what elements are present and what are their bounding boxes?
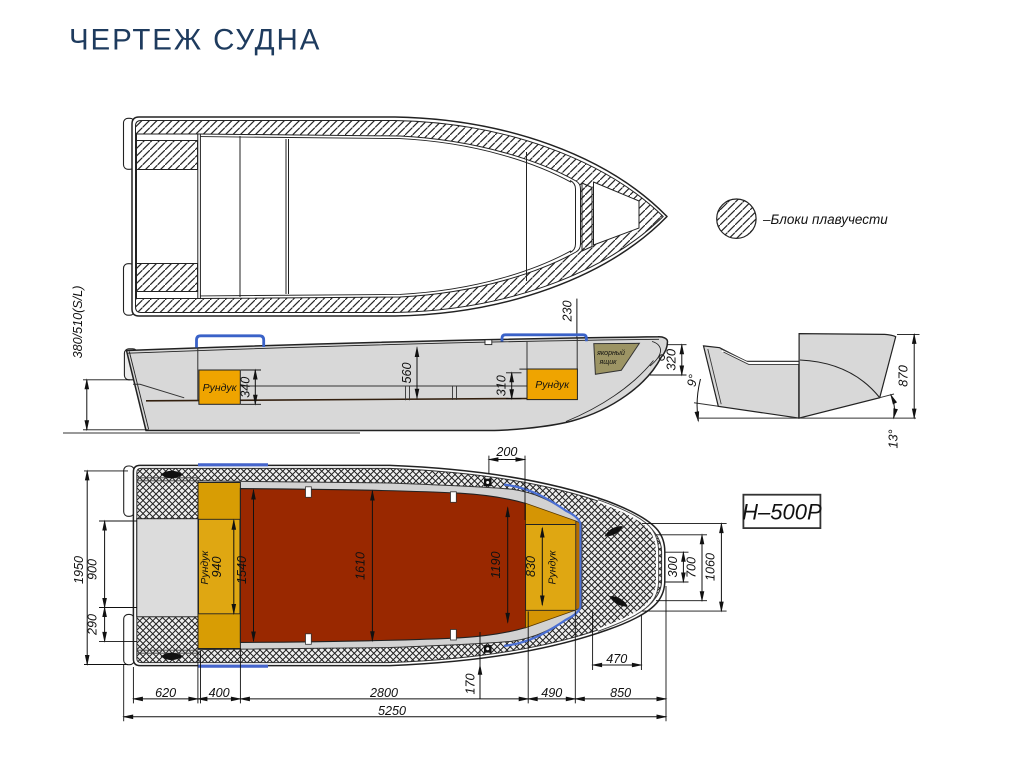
svg-text:Рундук: Рундук	[535, 379, 570, 391]
svg-text:ЧЕРТЕЖ СУДНА: ЧЕРТЕЖ СУДНА	[69, 24, 321, 57]
svg-text:13°: 13°	[887, 429, 901, 448]
svg-text:1610: 1610	[354, 552, 368, 580]
svg-text:380/510(S/L): 380/510(S/L)	[71, 286, 85, 359]
svg-text:560: 560	[400, 362, 414, 383]
svg-text:2800: 2800	[369, 686, 398, 700]
svg-text:5250: 5250	[378, 704, 406, 718]
svg-text:1950: 1950	[72, 556, 86, 584]
svg-text:900: 900	[86, 559, 100, 580]
svg-text:ящик: ящик	[599, 359, 618, 366]
svg-text:Рундук: Рундук	[203, 382, 238, 394]
svg-text:1540: 1540	[235, 556, 249, 584]
svg-text:–Блоки плавучести: –Блоки плавучести	[762, 212, 888, 227]
svg-text:200: 200	[495, 445, 517, 459]
svg-text:1060: 1060	[703, 553, 717, 581]
svg-text:700: 700	[684, 557, 698, 578]
svg-text:290: 290	[86, 614, 100, 636]
svg-text:Н–500Р: Н–500Р	[742, 500, 822, 525]
svg-text:Рундук: Рундук	[547, 550, 559, 585]
svg-text:170: 170	[463, 673, 477, 694]
svg-text:310: 310	[495, 375, 509, 396]
svg-text:830: 830	[524, 556, 538, 577]
svg-text:230: 230	[561, 300, 575, 322]
svg-text:340: 340	[238, 377, 252, 398]
svg-text:400: 400	[209, 686, 230, 700]
svg-text:470: 470	[606, 652, 627, 666]
svg-text:870: 870	[896, 364, 911, 386]
svg-text:620: 620	[155, 686, 176, 700]
svg-text:940: 940	[210, 556, 224, 577]
svg-text:320: 320	[664, 348, 679, 370]
svg-text:850: 850	[610, 686, 631, 700]
svg-text:якорный: якорный	[596, 349, 625, 357]
svg-text:490: 490	[541, 686, 562, 700]
svg-text:300: 300	[666, 556, 680, 577]
svg-text:1190: 1190	[489, 551, 503, 578]
